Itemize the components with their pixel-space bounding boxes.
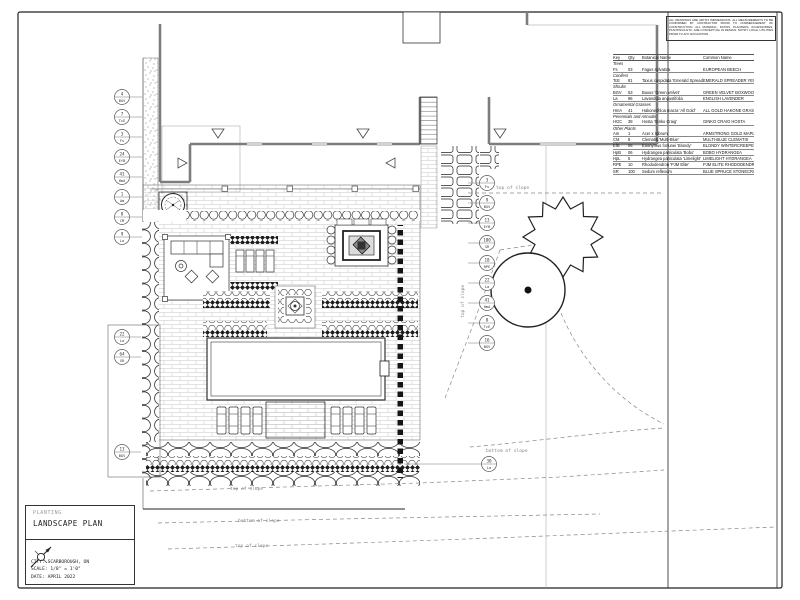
svg-text:13: 13 <box>119 447 125 452</box>
label-top-of-slope: top of slope <box>496 185 529 191</box>
sheet-subtitle: PLANTING <box>33 510 134 516</box>
svg-text:13: 13 <box>484 218 490 223</box>
table-row: SR 100 Sedum reflexum BLUE SPRUCE STONEC… <box>613 169 754 175</box>
header-common: Common Name <box>703 55 754 60</box>
svg-text:EfB: EfB <box>484 225 491 229</box>
title-block-upper: PLANTING LANDSCAPE PLAN <box>26 506 134 540</box>
sheet-title: LANDSCAPE PLAN <box>33 519 134 528</box>
header-key: Key <box>613 55 628 60</box>
raised-planter-wall <box>266 402 325 438</box>
general-notes-text: ALL DRAWINGS ARE ARTIST IMPRESSIONS. ALL… <box>669 18 773 37</box>
svg-text:Am: Am <box>120 199 124 203</box>
pool <box>207 338 389 400</box>
spa-feature <box>327 219 396 266</box>
svg-text:La: La <box>120 239 124 243</box>
svg-text:16: 16 <box>484 338 490 343</box>
svg-text:41: 41 <box>119 172 125 177</box>
date-label: DATE: APRIL 2022 <box>31 574 89 581</box>
svg-text:64: 64 <box>119 352 125 357</box>
svg-text:BGV: BGV <box>119 99 126 103</box>
table-header-row: Key Qty. Botanical Name Common Name <box>613 54 754 61</box>
svg-text:22: 22 <box>484 278 490 283</box>
label-top-of-slope: top of slope <box>230 486 263 492</box>
label-bottom-of-slope: bottom of slope <box>238 518 280 524</box>
pool-skimmer <box>380 361 389 376</box>
proposed-tree <box>491 253 565 327</box>
svg-text:30: 30 <box>486 459 492 464</box>
stairs <box>420 97 437 144</box>
svg-text:BGV: BGV <box>484 345 491 349</box>
label-top-of-slope-vert: top of slope <box>460 285 466 318</box>
fountain <box>275 286 315 328</box>
svg-text:HmA: HmA <box>484 305 491 309</box>
svg-text:TcE: TcE <box>484 325 491 329</box>
label-top-of-slope: top of slope <box>235 543 268 549</box>
svg-text:TcE: TcE <box>119 119 126 123</box>
svg-text:BGV: BGV <box>484 205 491 209</box>
svg-text:Fs: Fs <box>485 185 489 189</box>
header-qty: Qty. <box>628 55 642 60</box>
svg-text:La: La <box>487 466 491 470</box>
stepper-wall <box>397 225 406 478</box>
title-block-lower: CITY: SCARBOROUGH, ON SCALE: 1/8" = 1'0"… <box>26 540 134 584</box>
chimney-notch <box>403 12 440 43</box>
svg-text:Fs: Fs <box>120 139 124 143</box>
svg-text:10: 10 <box>484 258 490 263</box>
city-label: CITY: SCARBOROUGH, ON <box>31 559 89 566</box>
scale-label: SCALE: 1/8" = 1'0" <box>31 566 89 573</box>
general-notes-box: ALL DRAWINGS ARE ARTIST IMPRESSIONS. ALL… <box>666 16 776 41</box>
label-bottom-of-slope: bottom of slope <box>486 448 528 454</box>
title-block: PLANTING LANDSCAPE PLAN CITY: SCARBOROUG… <box>25 505 135 585</box>
bottom-hedge-rows <box>146 442 420 486</box>
drawing-sheet: top of slope top of slope bottom of slop… <box>0 0 800 600</box>
svg-text:La: La <box>485 285 489 289</box>
svg-text:24: 24 <box>119 152 125 157</box>
svg-text:100: 100 <box>483 238 491 243</box>
svg-text:La: La <box>120 339 124 343</box>
svg-text:EfB: EfB <box>119 159 126 163</box>
sheet-meta: CITY: SCARBOROUGH, ON SCALE: 1/8" = 1'0"… <box>31 559 89 581</box>
svg-text:RPE: RPE <box>484 265 491 269</box>
svg-text:22: 22 <box>119 332 125 337</box>
plant-schedule-table: Key Qty. Botanical Name Common Name Tree… <box>613 54 754 175</box>
hedge-row-left <box>142 222 159 478</box>
svg-text:41: 41 <box>484 298 490 303</box>
header-botanical: Botanical Name <box>642 55 703 60</box>
svg-text:HmA: HmA <box>119 179 126 183</box>
svg-text:BGV: BGV <box>119 454 126 458</box>
